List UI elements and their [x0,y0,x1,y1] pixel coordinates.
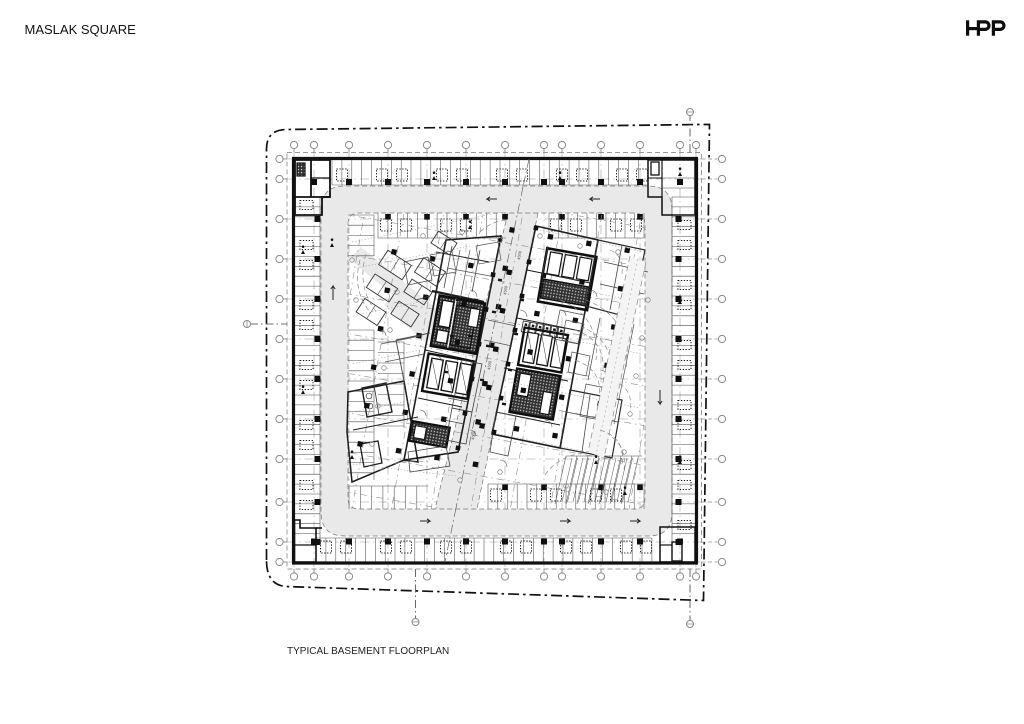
svg-text:TYPICAL BASEMENT FLOORPLAN: TYPICAL BASEMENT FLOORPLAN [287,646,449,657]
svg-text:MASLAK SQUARE: MASLAK SQUARE [25,22,137,37]
